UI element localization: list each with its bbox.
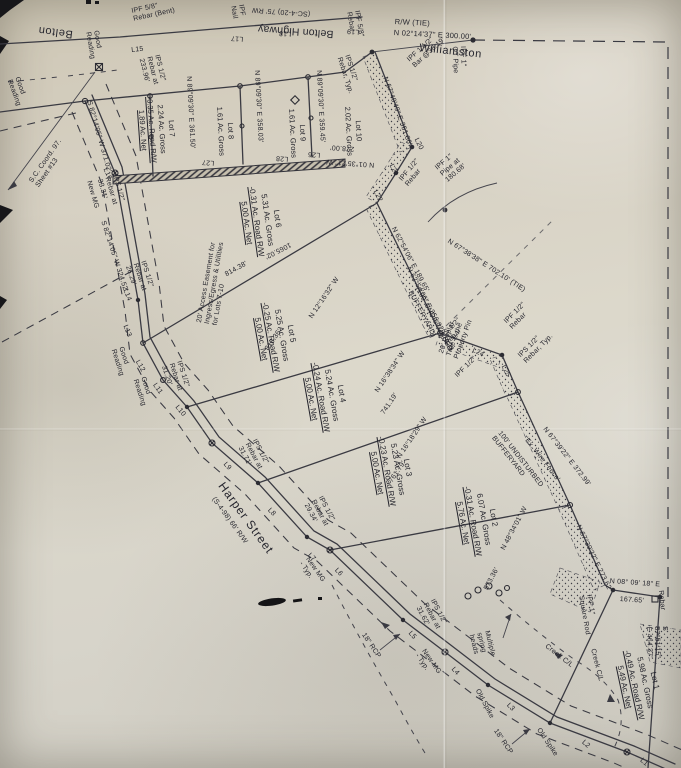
- curve-label: L27: [202, 157, 215, 166]
- monument-label-ipf-nail: IPF Nail: [228, 4, 246, 19]
- distance-16765: 167.65': [619, 596, 644, 606]
- curve-label: L18: [279, 28, 292, 37]
- lot-7-label: Lot 7 2.24 Ac. Gross -0.35 Ac. Road R/W …: [135, 95, 179, 164]
- lot-gross: 1.61 Ac. Gross: [287, 109, 299, 159]
- curve-label: L28: [276, 153, 289, 162]
- lot-10-label: Lot 10 2.02 Ac. Gross: [343, 106, 365, 156]
- curve-label: L15: [131, 46, 144, 55]
- curve-label: L19: [347, 26, 360, 35]
- ink-blob: [258, 596, 322, 607]
- lot-gross: 1.61 Ac. Gross: [215, 107, 227, 157]
- lot-8-label: Lot 8 1.61 Ac. Gross: [215, 106, 237, 156]
- lot-name: Lot 7: [166, 120, 177, 137]
- lot-name: Lot 8: [225, 122, 236, 139]
- survey-plat-scan: Belton Good Reading Good Reading IPF 5/8…: [0, 0, 681, 768]
- monument-label-ot-pipe: IPF 1" OT Pipe: [450, 46, 467, 73]
- bearing-rw-tie: R/W (TIE): [395, 18, 431, 28]
- lot-9-label: Lot 9 1.61 Ac. Gross: [287, 108, 309, 158]
- curve-label: L17: [231, 33, 244, 42]
- curve-label: L26: [308, 149, 321, 158]
- lot-gross: 2.02 Ac. Gross: [343, 107, 355, 157]
- lot-name: Lot 10: [353, 120, 364, 141]
- lot-name: Lot 9: [297, 124, 308, 141]
